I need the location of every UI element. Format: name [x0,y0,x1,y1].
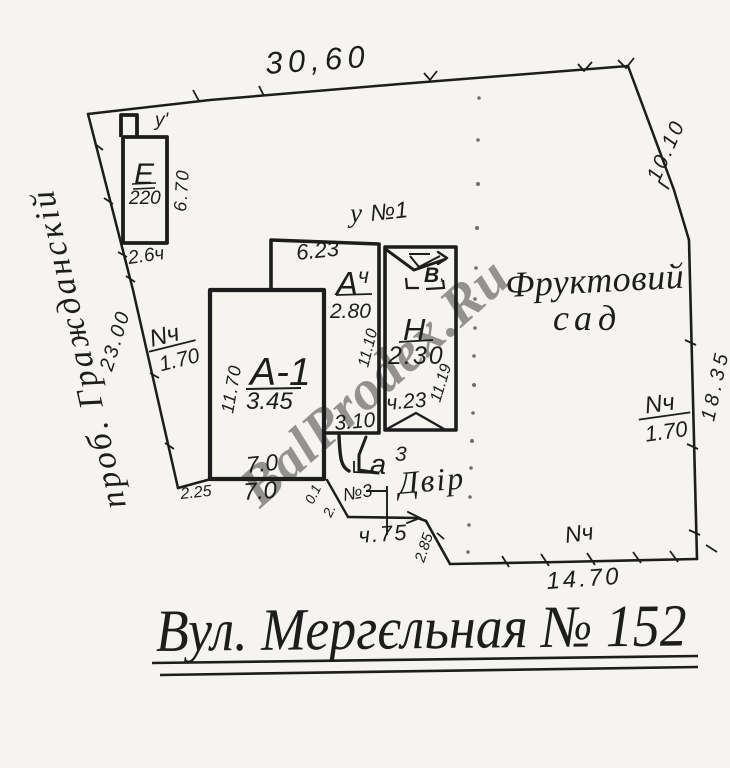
svg-text:ч.23: ч.23 [385,389,427,415]
svg-text:сад: сад [553,298,622,338]
svg-text:Вул. Мергєльная № 152: Вул. Мергєльная № 152 [155,593,687,665]
svg-text:В: В [424,264,439,287]
svg-text:7.0: 7.0 [243,477,279,506]
svg-text:ч: ч [358,265,369,288]
svg-text:а: а [370,449,386,481]
svg-text:у': у' [153,110,170,131]
svg-text:№1: №1 [369,196,409,226]
svg-text:30,60: 30,60 [264,39,371,81]
svg-text:7.0: 7.0 [245,449,280,478]
svg-text:3.45: 3.45 [246,388,293,415]
svg-text:Nч: Nч [563,518,595,548]
svg-text:2.25: 2.25 [179,483,213,503]
svg-text:2.30: 2.30 [387,342,445,370]
svg-text:220: 220 [128,188,161,209]
svg-text:6.70: 6.70 [170,168,193,212]
svg-text:2.80: 2.80 [329,300,371,323]
svg-text:14.70: 14.70 [546,563,623,595]
svg-text:3: 3 [395,443,407,466]
svg-text:3.10: 3.10 [333,408,376,435]
svg-text:у: у [347,198,362,228]
svg-text:Е: Е [134,158,155,191]
svg-text:6.23: 6.23 [295,236,341,265]
svg-text:ч.75: ч.75 [358,520,410,548]
svg-text:А: А [334,265,358,302]
